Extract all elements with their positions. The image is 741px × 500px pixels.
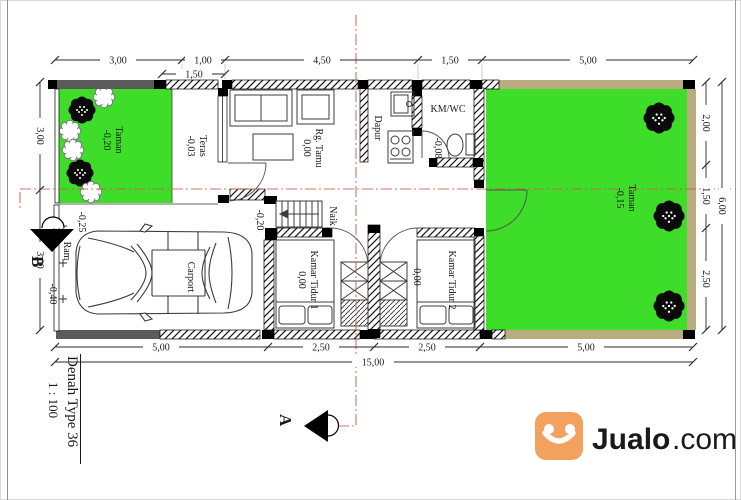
dim-top-1: 3,00 — [109, 56, 127, 67]
dim-left-1: 3,00 — [34, 127, 45, 145]
floor-plan-svg: 3,00 1,00 4,50 1,50 5,00 1,50 5,00 2,50 … — [0, 0, 741, 500]
label-ram-level: -0,25 — [76, 212, 87, 233]
dim-top-5: 5,00 — [579, 56, 597, 67]
label-kamar-2-level: 0,00 — [411, 268, 422, 286]
label-street-level: -0,40 — [47, 284, 58, 305]
label-dapur: Dapur — [372, 116, 383, 142]
svg-text:Taman: Taman — [626, 184, 637, 211]
label-taman-right: Taman -0,15 — [614, 184, 637, 211]
svg-text:0,00: 0,00 — [296, 271, 307, 289]
label-naik: Naik — [327, 206, 338, 225]
jualo-suffix-text: .com — [672, 423, 737, 456]
dim-bottom-3: 2,50 — [418, 343, 436, 354]
svg-text:B: B — [28, 256, 47, 267]
dim-bottom-4: 5,00 — [577, 343, 595, 354]
label-kamar-2: Kamar Tidur 2 — [446, 251, 457, 310]
svg-text:Rg. Tamu: Rg. Tamu — [313, 128, 324, 167]
label-km-wc: KM/WC — [431, 104, 466, 115]
dim-right-2: 1,50 — [700, 187, 711, 205]
dim-top-sub: 1,50 — [185, 70, 203, 81]
dim-bottom-1: 5,00 — [152, 343, 170, 354]
svg-text:-0,25: -0,25 — [76, 212, 87, 233]
svg-text:-0,20: -0,20 — [254, 210, 265, 231]
dim-bottom-2: 2,50 — [312, 343, 330, 354]
svg-text:Kamar Tidur 1: Kamar Tidur 1 — [308, 251, 319, 310]
svg-text:Ram: Ram — [61, 242, 72, 261]
plan-title: Denah Type 36 — [64, 356, 80, 448]
floor-plan-image: 3,00 1,00 4,50 1,50 5,00 1,50 5,00 2,50 … — [0, 0, 741, 500]
svg-text:-0,08: -0,08 — [432, 138, 443, 159]
svg-text:-0,03: -0,03 — [185, 136, 196, 157]
svg-text:Dapur: Dapur — [372, 116, 383, 142]
dim-right-total: 6,00 — [716, 197, 727, 215]
svg-text:-0,40: -0,40 — [47, 284, 58, 305]
svg-text:A: A — [276, 414, 295, 427]
svg-text:Kamar Tidur 2: Kamar Tidur 2 — [446, 251, 457, 310]
plan-scale: 1 : 100 — [46, 382, 61, 418]
svg-text:0,00: 0,00 — [301, 139, 312, 157]
dim-right-1: 2,00 — [700, 114, 711, 132]
svg-text:-0,20: -0,20 — [101, 130, 112, 151]
svg-text:Teras: Teras — [197, 135, 208, 157]
label-teras: Teras -0,03 — [185, 135, 208, 157]
svg-text:Naik: Naik — [327, 206, 338, 225]
label-taman-left: Taman -0,20 — [101, 126, 124, 153]
svg-text:-0,15: -0,15 — [614, 188, 625, 209]
label-carport-entry-level: -0,20 — [254, 210, 265, 231]
svg-text:Taman: Taman — [113, 126, 124, 153]
dim-top-2: 1,00 — [194, 56, 212, 67]
dim-bottom-total: 15,00 — [362, 358, 385, 369]
svg-text:0,00: 0,00 — [411, 268, 422, 286]
dim-top-4: 1,50 — [441, 56, 459, 67]
label-carport: Carport — [185, 262, 196, 293]
label-km-wc-level: -0,08 — [432, 138, 443, 159]
dim-right-3: 2,50 — [700, 270, 711, 288]
car — [76, 224, 252, 321]
jualo-icon — [535, 412, 583, 460]
svg-text:Carport: Carport — [185, 262, 196, 293]
stairs — [276, 201, 322, 227]
dim-top-3: 4,50 — [313, 56, 331, 67]
label-ram: Ram — [61, 242, 72, 261]
jualo-brand-text: Jualo — [592, 423, 670, 456]
